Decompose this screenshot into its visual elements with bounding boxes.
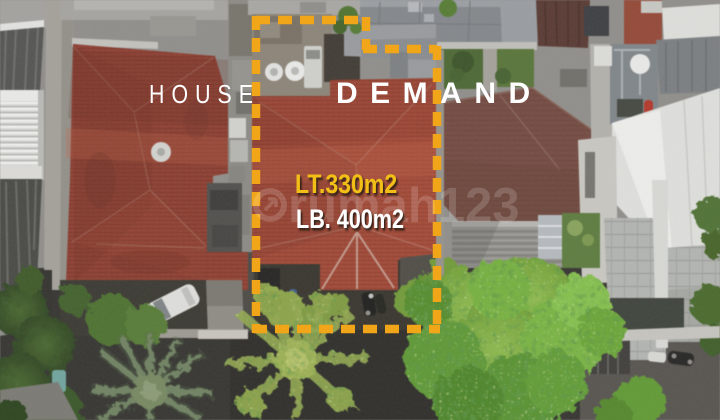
svg-text:LT.330m2: LT.330m2 (295, 169, 397, 199)
svg-text:LB. 400m2: LB. 400m2 (296, 205, 404, 235)
svg-text:HOUSE: HOUSE (149, 80, 260, 110)
svg-text:DEMAND: DEMAND (336, 77, 543, 110)
